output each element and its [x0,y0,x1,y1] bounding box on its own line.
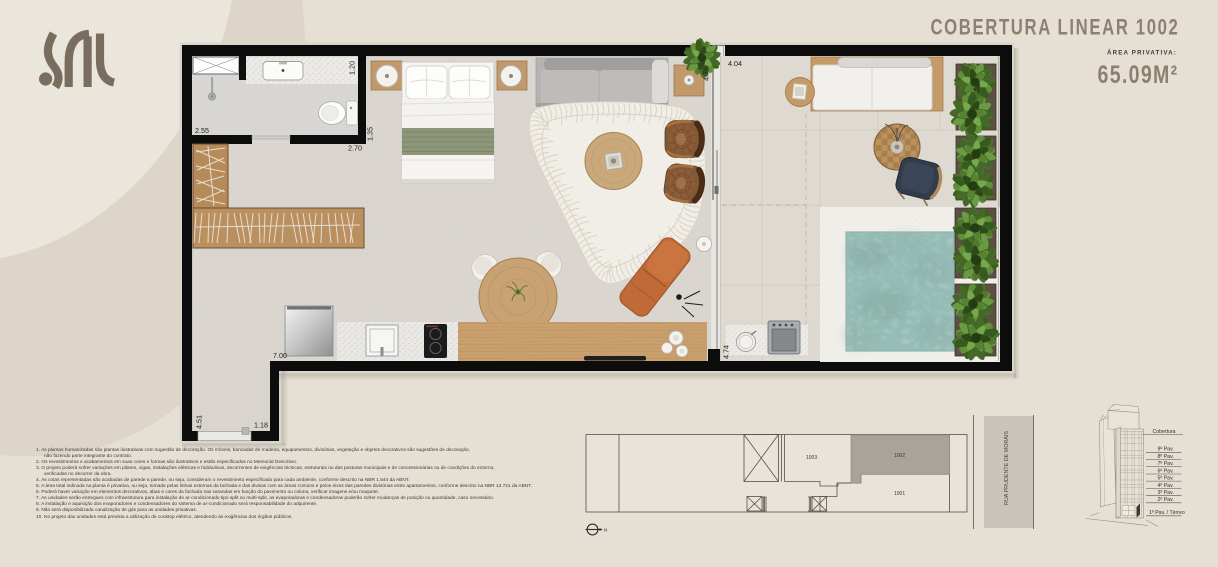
svg-text:9º Pav.: 9º Pav. [1158,447,1174,453]
svg-text:2.55: 2.55 [195,126,209,135]
svg-text:4.04: 4.04 [728,59,742,68]
svg-text:1.35: 1.35 [366,127,375,141]
svg-text:7º Pav.: 7º Pav. [1158,461,1174,467]
svg-text:7.00: 7.00 [273,351,287,360]
svg-text:RUA PRUDENTE DE MORAIS: RUA PRUDENTE DE MORAIS [1004,431,1010,505]
svg-text:1.18: 1.18 [254,421,268,430]
svg-text:COBERTURA LINEAR 1002: COBERTURA LINEAR 1002 [930,16,1179,40]
svg-text:3º Pav.: 3º Pav. [1158,490,1174,496]
svg-text:4.74: 4.74 [722,345,731,359]
svg-text:1003: 1003 [806,455,817,461]
svg-text:1002: 1002 [894,453,905,459]
svg-text:2º Pav.: 2º Pav. [1158,497,1174,503]
svg-text:8º Pav.: 8º Pav. [1158,454,1174,460]
svg-text:4º Pav.: 4º Pav. [1158,483,1174,489]
svg-text:4.76: 4.76 [702,67,711,81]
svg-text:ÁREA PRIVATIVA:: ÁREA PRIVATIVA: [1107,47,1177,56]
svg-text:2.70: 2.70 [348,144,362,153]
svg-text:1001: 1001 [894,491,905,497]
svg-text:Cobertura: Cobertura [1153,429,1176,435]
svg-text:1º Pav. / Térreo: 1º Pav. / Térreo [1149,510,1185,516]
svg-text:65.09M²: 65.09M² [1098,61,1179,89]
svg-text:1.20: 1.20 [348,61,357,75]
svg-text:4.51: 4.51 [195,415,204,429]
svg-text:N: N [604,528,607,533]
svg-text:6º Pav.: 6º Pav. [1158,468,1174,474]
svg-text:5º Pav.: 5º Pav. [1158,476,1174,482]
